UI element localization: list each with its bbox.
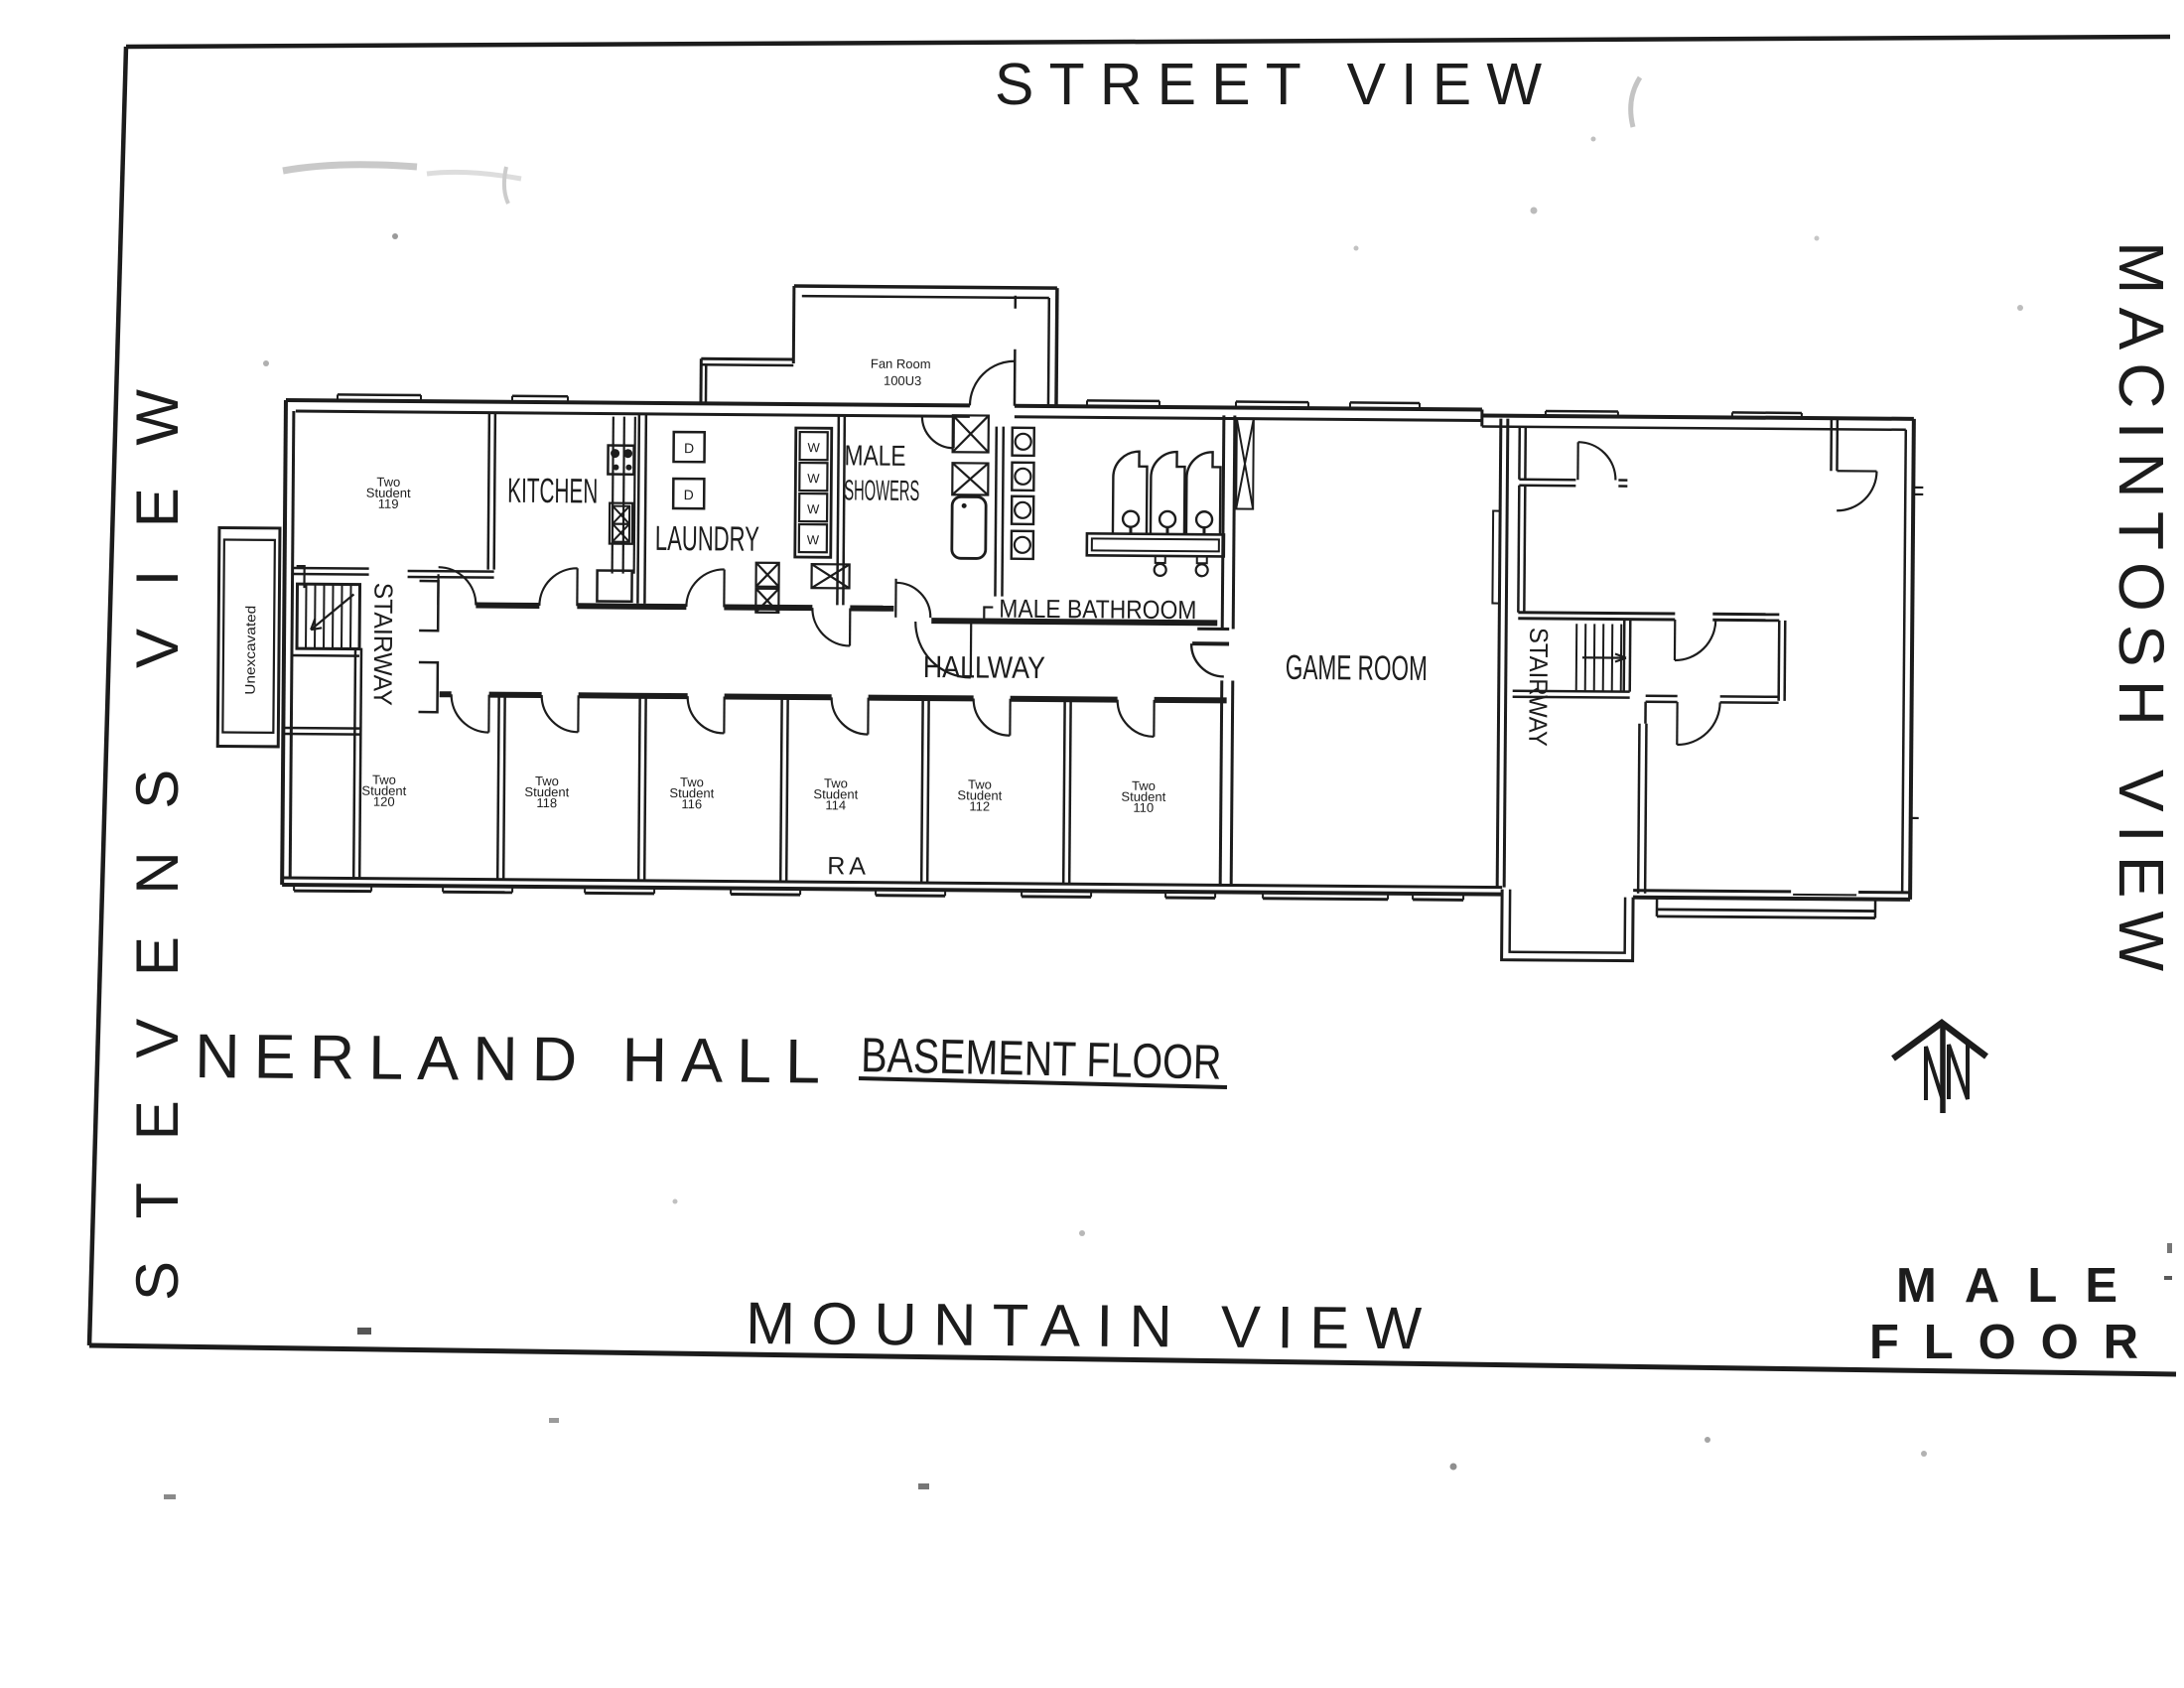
svg-text:MALE: MALE [844, 440, 905, 472]
svg-text:Fan Room: Fan Room [871, 356, 931, 371]
svg-text:SHOWERS: SHOWERS [844, 475, 919, 507]
svg-text:MACINTOSH VIEW: MACINTOSH VIEW [2106, 241, 2177, 972]
svg-text:120: 120 [373, 794, 395, 809]
svg-text:Unexcavated: Unexcavated [242, 606, 259, 695]
svg-text:RA: RA [827, 852, 870, 880]
svg-text:100U3: 100U3 [884, 373, 921, 388]
svg-text:STAIRWAY: STAIRWAY [1523, 628, 1554, 747]
svg-text:FLOOR: FLOOR [1869, 1316, 2138, 1369]
svg-text:W: W [807, 471, 820, 486]
svg-text:119: 119 [378, 496, 399, 511]
svg-text:MALE: MALE [1896, 1259, 2117, 1313]
svg-text:112: 112 [969, 798, 990, 813]
svg-text:D: D [684, 487, 694, 502]
svg-text:W: W [807, 532, 820, 547]
svg-text:LAUNDRY: LAUNDRY [655, 519, 759, 559]
svg-text:HALLWAY: HALLWAY [923, 649, 1045, 685]
svg-text:GAME ROOM: GAME ROOM [1286, 648, 1428, 688]
svg-text:W: W [807, 501, 820, 516]
svg-text:MOUNTAIN VIEW: MOUNTAIN VIEW [746, 1290, 1423, 1361]
svg-text:110: 110 [1133, 800, 1154, 815]
svg-text:NERLAND HALL: NERLAND HALL [195, 1022, 821, 1096]
svg-text:116: 116 [681, 796, 702, 811]
svg-text:118: 118 [536, 795, 557, 810]
svg-text:D: D [684, 440, 694, 456]
svg-text:114: 114 [825, 797, 846, 812]
svg-text:STEVENS VIEW: STEVENS VIEW [124, 389, 191, 1301]
svg-text:STAIRWAY: STAIRWAY [368, 583, 399, 706]
svg-text:KITCHEN: KITCHEN [507, 472, 598, 511]
svg-text:MALE BATHROOM: MALE BATHROOM [999, 594, 1196, 626]
svg-text:STREET VIEW: STREET VIEW [995, 52, 1542, 117]
svg-text:W: W [807, 440, 820, 455]
